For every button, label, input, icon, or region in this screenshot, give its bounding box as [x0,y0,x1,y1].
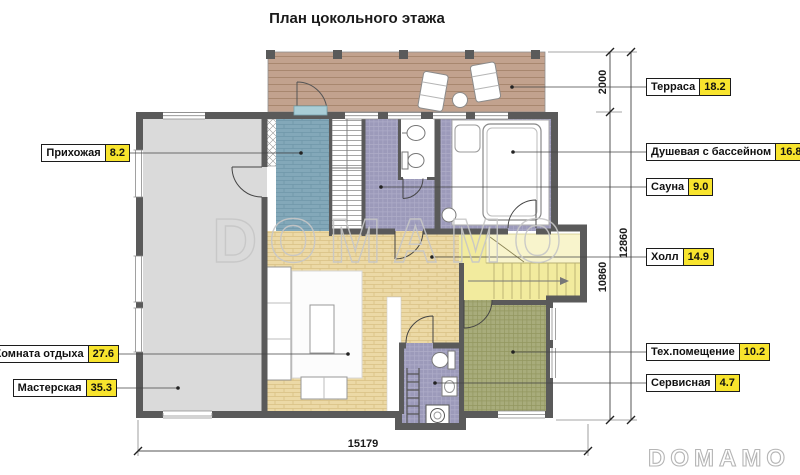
round-table-icon [453,93,468,108]
room-label-sauna: Сауна 9.0 [646,178,713,196]
window [550,348,558,378]
window [345,113,378,120]
room-area: 35.3 [86,380,116,396]
window [134,256,144,302]
window [498,411,545,418]
room-area: 27.6 [88,346,118,362]
room-label-hall: Холл 14.9 [646,248,714,266]
logo-text: DOMAMO [648,445,790,472]
window [475,113,508,120]
room-area: 10.2 [739,344,769,360]
window [134,308,144,352]
bench-icon [301,377,347,399]
door-threshold [294,106,327,115]
coffee-table-icon [310,305,334,353]
sink-icon [442,377,457,396]
plan-title: План цокольного этажа [269,10,445,27]
room-name: Прихожая [42,145,104,161]
toilet-icon [402,152,408,169]
window [550,308,558,340]
room-label-lounge: Комната отдыха 27.6 [0,345,119,363]
room-label-hallway: Прихожая 8.2 [41,144,130,162]
room-label-tech: Тех.помещение 10.2 [646,343,770,361]
service-room [399,343,461,427]
room-area: 16.8 [775,144,800,160]
room-label-shower-pool: Душевая с бассейном 16.8 [646,143,800,161]
floor-plan-page: План цокольного этажа [0,0,800,475]
window [163,113,205,120]
window [134,150,144,197]
washing-machine-icon [426,405,449,426]
room-name: Мастерская [14,380,86,396]
tech-room-floor [459,300,553,416]
cabinet [387,297,401,415]
room-name: Терраса [647,79,699,95]
room-name: Холл [647,249,683,265]
room-name: Комната отдыха [0,346,88,362]
floor-plan-drawing: План цокольного этажа [0,0,800,475]
room-label-terrace: Терраса 18.2 [646,78,731,96]
room-name: Душевая с бассейном [647,144,775,160]
watermark-text: DOMAMO [212,207,573,276]
toilet-icon [448,351,455,369]
room-area: 9.0 [688,179,712,195]
room-area: 8.2 [105,145,129,161]
window [433,113,466,120]
dim-total-depth: 12860 [618,228,630,259]
room-name: Тех.помещение [647,344,739,360]
dim-house-depth: 10860 [597,262,609,293]
room-label-workshop: Мастерская 35.3 [13,379,117,397]
sink-icon [407,126,425,141]
room-label-service: Сервисная 4.7 [646,374,740,392]
terrace-deck [268,52,545,112]
wc-niche [401,117,436,179]
room-name: Сауна [647,179,688,195]
room-area: 14.9 [683,249,713,265]
room-area: 4.7 [715,375,739,391]
window [388,113,421,120]
dim-terrace-depth: 2000 [597,70,609,94]
dim-total-width: 15179 [348,438,379,450]
room-area: 18.2 [699,79,729,95]
window [163,411,212,418]
room-name: Сервисная [647,375,715,391]
terrace [266,50,545,112]
